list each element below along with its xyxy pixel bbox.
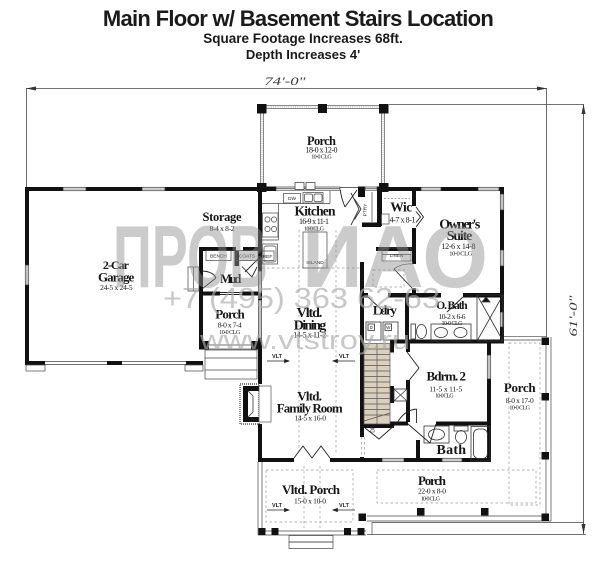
svg-text:Bdrm. 2: Bdrm. 2 [427,369,467,384]
svg-text:10-0 CLG: 10-0 CLG [435,394,454,400]
svg-text:10-0 CLG: 10-0 CLG [311,155,332,161]
svg-text:www.vtstroy.ru: www.vtstroy.ru [199,325,410,355]
svg-text:15-0 x 10-0: 15-0 x 10-0 [294,497,326,506]
svg-text:+7 (495) 363 62-63: +7 (495) 363 62-63 [163,283,440,315]
svg-text:10-2 x 6-6: 10-2 x 6-6 [439,312,466,321]
svg-text:10-0 CLG: 10-0 CLG [509,406,530,412]
svg-text:11-5 x 11-5: 11-5 x 11-5 [429,385,462,394]
svg-text:VLT: VLT [339,503,350,509]
svg-text:10-0 CLG: 10-0 CLG [421,497,441,503]
svg-text:74'-0": 74'-0" [265,74,307,88]
svg-text:8-0 x 17-0: 8-0 x 17-0 [506,396,534,405]
svg-text:DW: DW [288,196,296,202]
svg-text:DN: DN [371,425,377,433]
svg-text:Vltd. Porch: Vltd. Porch [282,482,341,497]
svg-text:61'-0": 61'-0" [566,294,580,336]
svg-text:18-0 x 12-0: 18-0 x 12-0 [306,146,338,155]
svg-text:14-5 x 16-0: 14-5 x 16-0 [295,413,327,422]
svg-text:10-0 CLG: 10-0 CLG [442,321,464,327]
svg-text:Bath: Bath [437,443,467,458]
svg-text:22-0 x 8-0: 22-0 x 8-0 [418,487,446,496]
svg-text:VLT: VLT [272,503,283,509]
svg-text:Porch: Porch [504,380,536,395]
